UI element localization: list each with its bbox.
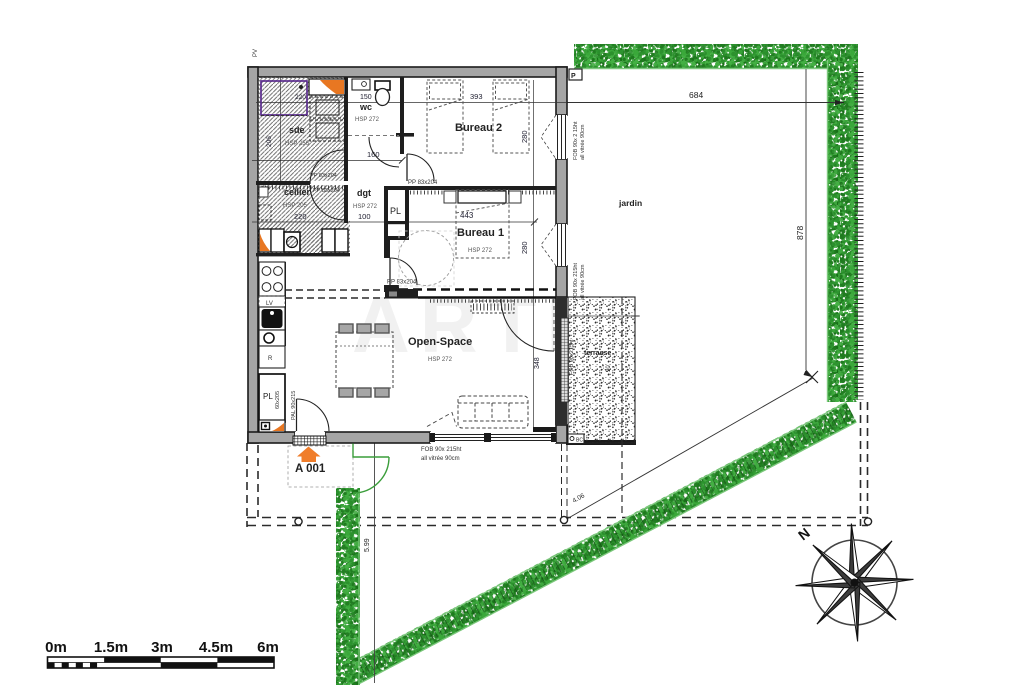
svg-text:60x205: 60x205	[275, 391, 281, 409]
svg-text:PL: PL	[263, 392, 273, 401]
svg-text:N: N	[795, 525, 813, 544]
svg-text:HSP 272: HSP 272	[353, 204, 378, 210]
svg-text:sde: sde	[289, 125, 305, 135]
svg-text:1.5m: 1.5m	[94, 639, 128, 656]
svg-text:6m: 6m	[257, 639, 279, 656]
svg-text:90: 90	[606, 365, 612, 372]
svg-text:HSP 256: HSP 256	[285, 141, 310, 147]
svg-text:A 001: A 001	[295, 463, 326, 475]
svg-text:terrasse: terrasse	[584, 350, 611, 357]
svg-text:FOB 90x 2 15ht: FOB 90x 2 15ht	[573, 121, 579, 160]
svg-text:cellier: cellier	[284, 187, 311, 197]
svg-text:jardin: jardin	[618, 198, 642, 208]
svg-text:wc: wc	[359, 102, 372, 112]
svg-text:PP 83x204: PP 83x204	[408, 180, 438, 186]
svg-text:4.5m: 4.5m	[199, 639, 233, 656]
svg-text:PP 83x204: PP 83x204	[310, 173, 337, 179]
svg-text:280: 280	[520, 130, 529, 143]
svg-text:280: 280	[520, 241, 529, 254]
svg-text:FOB 90x215ht: FOB 90x215ht	[569, 339, 575, 375]
svg-text:220: 220	[295, 94, 306, 101]
svg-text:443: 443	[460, 211, 474, 220]
svg-text:all vitrée 90cm: all vitrée 90cm	[580, 264, 586, 300]
svg-text:dgt: dgt	[357, 188, 371, 198]
svg-text:LV: LV	[266, 301, 273, 307]
svg-text:5.99: 5.99	[364, 538, 371, 552]
svg-text:all vitrée 90cm: all vitrée 90cm	[580, 124, 586, 160]
svg-text:Bureau 2: Bureau 2	[455, 122, 502, 134]
svg-text:HSP 272: HSP 272	[355, 117, 380, 123]
svg-text:Bureau 1: Bureau 1	[457, 227, 504, 239]
svg-text:HSP 272: HSP 272	[428, 357, 453, 363]
svg-text:220: 220	[294, 212, 307, 221]
svg-text:878: 878	[795, 226, 805, 240]
svg-text:all vitrée 90cm: all vitrée 90cm	[421, 456, 460, 462]
svg-text:HSP 205: HSP 205	[283, 203, 308, 209]
svg-text:206: 206	[266, 136, 273, 147]
svg-text:4.06: 4.06	[572, 492, 587, 505]
svg-text:3m: 3m	[151, 639, 173, 656]
svg-text:P: P	[571, 73, 576, 80]
svg-text:PL: PL	[390, 206, 401, 216]
svg-text:R: R	[268, 356, 273, 362]
svg-text:FOB 90x 215ht: FOB 90x 215ht	[573, 263, 579, 300]
svg-text:348: 348	[534, 357, 541, 369]
svg-text:HSP 272: HSP 272	[468, 248, 493, 254]
svg-text:PP 83x204: PP 83x204	[387, 280, 417, 286]
svg-text:PP 83x204: PP 83x204	[313, 188, 340, 194]
svg-text:Open-Space: Open-Space	[408, 336, 472, 348]
svg-text:100: 100	[358, 212, 371, 221]
svg-text:684: 684	[689, 90, 703, 100]
svg-text:BC: BC	[576, 438, 583, 444]
svg-text:PV: PV	[253, 49, 259, 57]
svg-text:393: 393	[470, 92, 483, 101]
svg-text:0m: 0m	[45, 639, 67, 656]
svg-text:150: 150	[360, 94, 372, 101]
svg-text:FOB 90x 215ht: FOB 90x 215ht	[421, 447, 462, 453]
